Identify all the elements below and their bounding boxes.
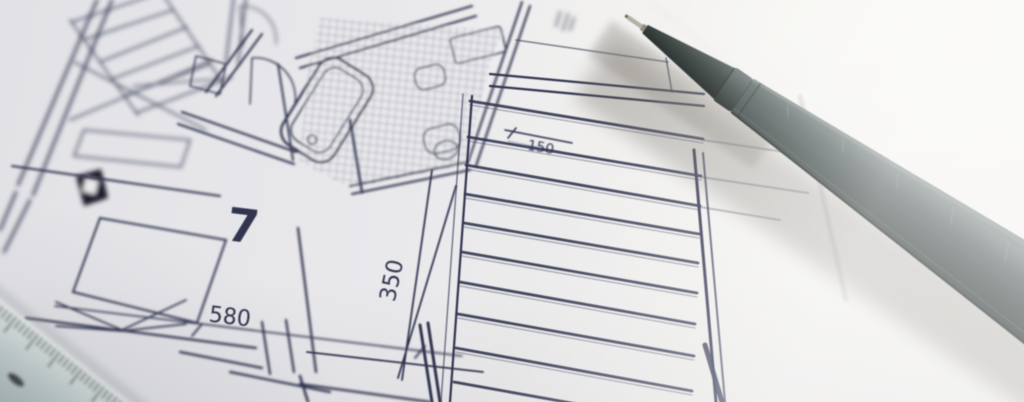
blurred-note <box>556 12 574 30</box>
dim-580-label: 580 <box>207 303 252 333</box>
photo-canvas: 150 7 580 350 <box>0 0 1024 402</box>
floor-plan-scene: 150 7 580 350 <box>0 0 1024 402</box>
tile-hatch <box>300 18 504 188</box>
left-wall <box>0 0 112 252</box>
dim-150: 150 <box>505 12 574 158</box>
dim-350-label: 350 <box>376 258 409 304</box>
ruler <box>0 264 208 402</box>
dim-150-label: 150 <box>526 138 555 158</box>
mechanical-pencil <box>563 0 1024 402</box>
bed <box>73 218 226 323</box>
room-number: 7 <box>224 197 262 254</box>
